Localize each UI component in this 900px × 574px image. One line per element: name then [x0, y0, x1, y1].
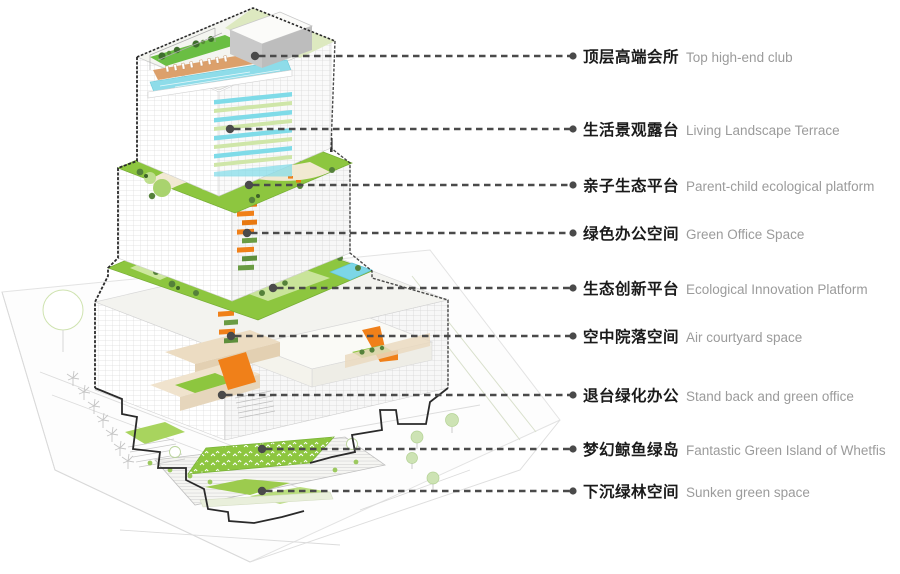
callout-label-en: Air courtyard space — [686, 330, 802, 345]
callout-label-zh: 空中院落空间 — [583, 325, 679, 347]
callout-green-office: 绿色办公空间 Green Office Space — [583, 222, 804, 244]
callout-label-zh: 亲子生态平台 — [583, 174, 679, 196]
diagram-canvas: 顶层高端会所 Top high-end club 生活景观露台 Living L… — [0, 0, 900, 574]
callout-top-club: 顶层高端会所 Top high-end club — [583, 45, 793, 67]
callout-label-en: Stand back and green office — [686, 389, 854, 404]
callout-label-zh: 退台绿化办公 — [583, 384, 679, 406]
callout-parent-child: 亲子生态平台 Parent-child ecological platform — [583, 174, 874, 196]
callout-label-en: Green Office Space — [686, 227, 804, 242]
callout-eco-innovation: 生态创新平台 Ecological Innovation Platform — [583, 277, 868, 299]
callout-label-en: Top high-end club — [686, 50, 793, 65]
callout-stand-back: 退台绿化办公 Stand back and green office — [583, 384, 854, 406]
callout-label-en: Ecological Innovation Platform — [686, 282, 868, 297]
callout-label-zh: 梦幻鲸鱼绿岛 — [583, 438, 679, 460]
callout-label-en: Fantastic Green Island of Whetfis — [686, 443, 886, 458]
callout-label-zh: 生态创新平台 — [583, 277, 679, 299]
callout-label-en: Parent-child ecological platform — [686, 179, 874, 194]
callout-label-zh: 生活景观露台 — [583, 118, 679, 140]
callout-living-terrace: 生活景观露台 Living Landscape Terrace — [583, 118, 840, 140]
callout-label-en: Living Landscape Terrace — [686, 123, 840, 138]
callout-whale-island: 梦幻鲸鱼绿岛 Fantastic Green Island of Whetfis — [583, 438, 886, 460]
callout-label-en: Sunken green space — [686, 485, 810, 500]
callout-label-zh: 下沉绿林空间 — [583, 480, 679, 502]
callout-label-zh: 顶层高端会所 — [583, 45, 679, 67]
callout-sunken-green: 下沉绿林空间 Sunken green space — [583, 480, 810, 502]
callout-air-courtyard: 空中院落空间 Air courtyard space — [583, 325, 802, 347]
callout-label-zh: 绿色办公空间 — [583, 222, 679, 244]
